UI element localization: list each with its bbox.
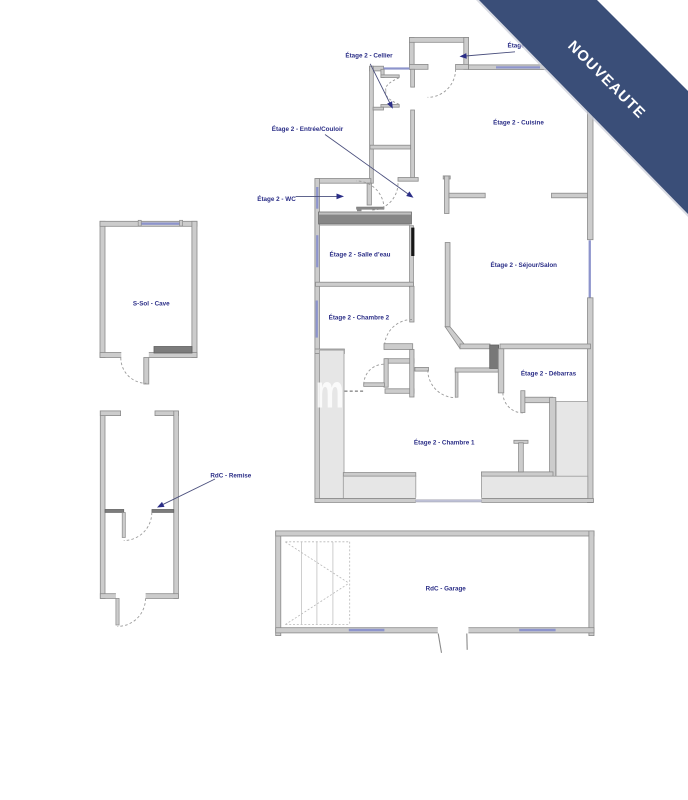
svg-text:Étage 2 - WC: Étage 2 - WC: [257, 194, 296, 203]
svg-text:Étage 2 - Chambre 1: Étage 2 - Chambre 1: [414, 438, 475, 447]
svg-text:Étage 2 - Cellier: Étage 2 - Cellier: [345, 51, 393, 60]
svg-text:Étage 2 - Cuisine: Étage 2 - Cuisine: [493, 118, 544, 127]
svg-text:Étage 2 - Débarras: Étage 2 - Débarras: [521, 369, 577, 378]
svg-text:RdC - Garage: RdC - Garage: [426, 586, 467, 593]
svg-text:Étage 2 - Entrée/Couloir: Étage 2 - Entrée/Couloir: [272, 124, 344, 133]
svg-text:Étage 2 - Chambre 2: Étage 2 - Chambre 2: [329, 313, 390, 322]
svg-text:Étage 2 - Salle d’eau: Étage 2 - Salle d’eau: [330, 250, 391, 259]
svg-text:RdC - Remise: RdC - Remise: [210, 473, 251, 480]
svg-text:S-Sol - Cave: S-Sol - Cave: [133, 301, 170, 308]
svg-text:Étage 2 - Séjour/Salon: Étage 2 - Séjour/Salon: [491, 260, 558, 269]
svg-text:m: m: [316, 364, 345, 417]
